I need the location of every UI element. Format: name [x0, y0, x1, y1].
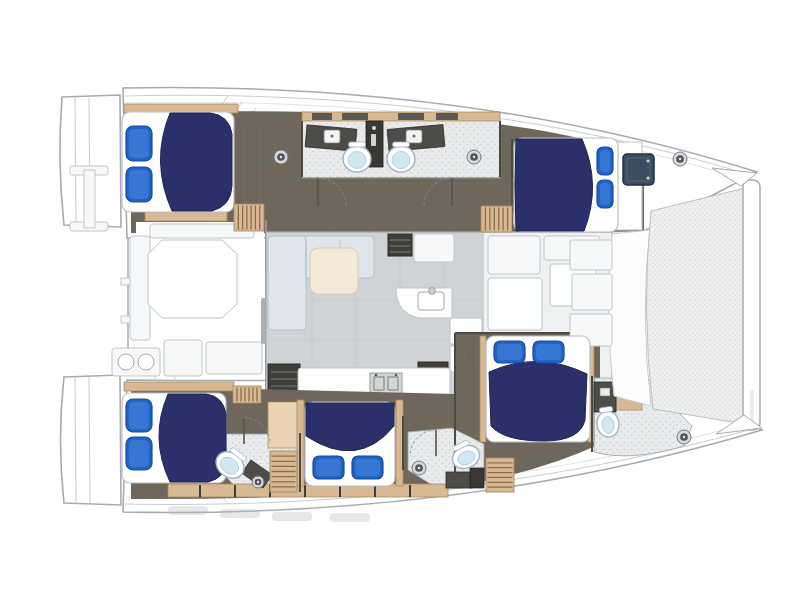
trampoline	[646, 188, 745, 424]
fwd-cabin-jamb-left	[480, 336, 486, 442]
hatch-hinge-2	[647, 177, 650, 180]
salon-sofa-left	[268, 236, 306, 330]
bed-pillow-highlight	[536, 344, 561, 360]
mid-cabin-jamb-right	[396, 400, 403, 486]
bed-pillow-highlight	[600, 150, 610, 172]
toilet-tank	[393, 142, 410, 147]
shower-port-left	[274, 150, 288, 164]
deck-fitting-bow-port	[673, 152, 687, 166]
catamaran-floor-plan	[0, 0, 800, 600]
shower-center	[679, 158, 681, 160]
bed-duvet	[160, 113, 232, 211]
bed-pillow-highlight	[497, 344, 522, 360]
forepeak-hatch	[623, 154, 654, 185]
cockpit-grill	[112, 348, 160, 376]
bed-pillow-highlight	[600, 183, 610, 205]
companionway-port	[388, 234, 412, 256]
foredeck-locker-2	[572, 274, 612, 310]
shower-starboard-mid	[412, 461, 426, 475]
starboard-aft-shelf-top	[124, 382, 234, 391]
deck-fitting-bow-starboard	[677, 430, 691, 444]
nav-desk	[488, 236, 540, 274]
cockpit-table	[148, 240, 237, 318]
bed-port-forward	[514, 138, 618, 232]
foredeck-locker-1	[570, 240, 612, 270]
bed-pillow-highlight	[129, 440, 149, 467]
aft-cockpit	[112, 220, 269, 396]
salon-table	[310, 248, 358, 294]
louver-port-aft	[234, 204, 264, 231]
bed-port-aft	[122, 112, 234, 212]
bed-pillow-highlight	[129, 170, 149, 199]
bed-pillow-highlight	[129, 402, 149, 429]
louver-starboard-wardrobe	[233, 386, 261, 403]
cockpit-side-bench	[130, 236, 150, 340]
starboard-locker-strip	[168, 484, 448, 497]
bed-pillow-highlight	[316, 459, 341, 476]
salon-cabinet-top	[414, 234, 454, 262]
port-head-left-vanity	[305, 125, 357, 151]
bed-pillow-highlight	[129, 129, 149, 158]
shower-center	[473, 156, 475, 158]
shower-port-right	[467, 150, 481, 164]
hatch-hinge-1	[647, 160, 650, 163]
floor-plan-stage	[0, 0, 800, 600]
swim-platform-starboard	[61, 375, 122, 505]
louver-port-forward	[481, 206, 512, 232]
stairs-starboard-forward	[486, 458, 514, 492]
starboard-wardrobe-cabinet	[268, 402, 298, 448]
toilet-seat	[348, 152, 366, 169]
bed-pillow-highlight	[355, 459, 380, 476]
stairs-starboard-aft	[270, 451, 297, 492]
shower-center	[257, 481, 259, 483]
toilet-seat	[392, 152, 410, 169]
shower-center	[418, 467, 420, 469]
mid-head-vanity	[446, 472, 472, 488]
bed-starboard-forward	[486, 336, 590, 442]
cockpit-module-2	[206, 342, 262, 374]
mid-head-cabinet	[470, 468, 484, 488]
bed-duvet	[515, 139, 593, 231]
stair-treads	[272, 456, 296, 487]
bed-duvet	[489, 361, 587, 441]
bed-starboard-mid	[305, 402, 395, 486]
starboard-cabinet	[488, 278, 542, 330]
foredeck	[608, 230, 651, 406]
bed-duvet	[159, 394, 226, 482]
cockpit-module-1	[164, 340, 202, 376]
bed-starboard-aft	[122, 393, 226, 483]
fwd-head-faucet	[600, 388, 610, 396]
companionway-starboard-aft	[268, 364, 300, 394]
shower-center	[280, 156, 282, 158]
toilet-tank	[349, 142, 366, 147]
shower-center	[683, 436, 685, 438]
galley-stove	[370, 373, 402, 394]
shower-starboard-aft	[252, 476, 264, 488]
